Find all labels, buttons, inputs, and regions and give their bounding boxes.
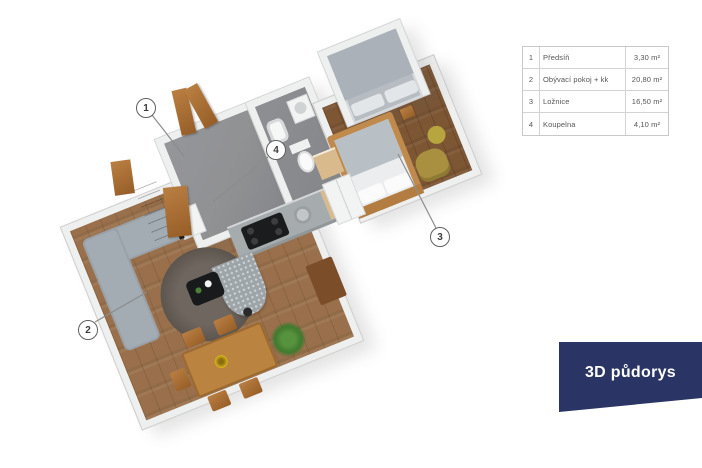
legend-row-number: 2 xyxy=(523,69,540,91)
legend-row-number: 1 xyxy=(523,47,540,69)
callout-4: 4 xyxy=(266,140,286,160)
legend-room-name: Obývací pokoj + kk xyxy=(540,69,626,91)
legend-room-name: Předsíň xyxy=(540,47,626,69)
callout-1: 1 xyxy=(136,98,156,118)
floor-plan-page: 1 2 3 4 1 Předsíň 3,30 m² 2 Obývací poko… xyxy=(0,0,702,468)
callout-3: 3 xyxy=(430,227,450,247)
desk-chair xyxy=(110,159,135,195)
legend-room-area: 16,50 m² xyxy=(626,91,668,113)
interior-door xyxy=(163,185,192,237)
legend-room-area: 20,80 m² xyxy=(626,69,668,91)
legend-row-number: 3 xyxy=(523,91,540,113)
legend-room-name: Ložnice xyxy=(540,91,626,113)
callout-2: 2 xyxy=(78,320,98,340)
legend-room-area: 4,10 m² xyxy=(626,113,668,135)
legend-table: 1 Předsíň 3,30 m² 2 Obývací pokoj + kk 2… xyxy=(522,46,669,136)
banner-label: 3D půdorys xyxy=(585,364,676,382)
legend-room-area: 3,30 m² xyxy=(626,47,668,69)
plan-type-banner: 3D půdorys xyxy=(559,342,702,412)
legend-room-name: Koupelna xyxy=(540,113,626,135)
legend-row-number: 4 xyxy=(523,113,540,135)
